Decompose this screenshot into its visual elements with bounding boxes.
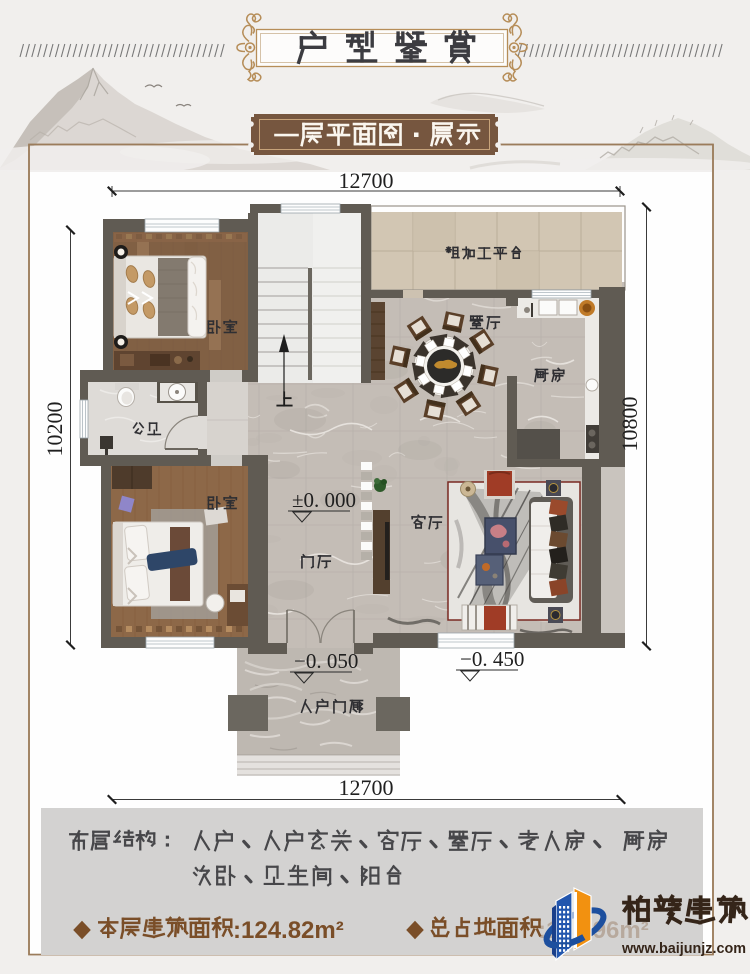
svg-text:−0. 050: −0. 050 (294, 649, 358, 673)
svg-text:12700: 12700 (339, 775, 394, 800)
svg-text:www.baijunjz.com: www.baijunjz.com (621, 941, 746, 957)
svg-text:10800: 10800 (617, 397, 642, 452)
svg-text:−0. 450: −0. 450 (460, 647, 524, 671)
svg-text:10200: 10200 (42, 402, 67, 457)
svg-text:±0. 000: ±0. 000 (292, 488, 356, 512)
svg-text:12700: 12700 (339, 168, 394, 193)
svg-text::124.82m²: :124.82m² (233, 917, 344, 944)
